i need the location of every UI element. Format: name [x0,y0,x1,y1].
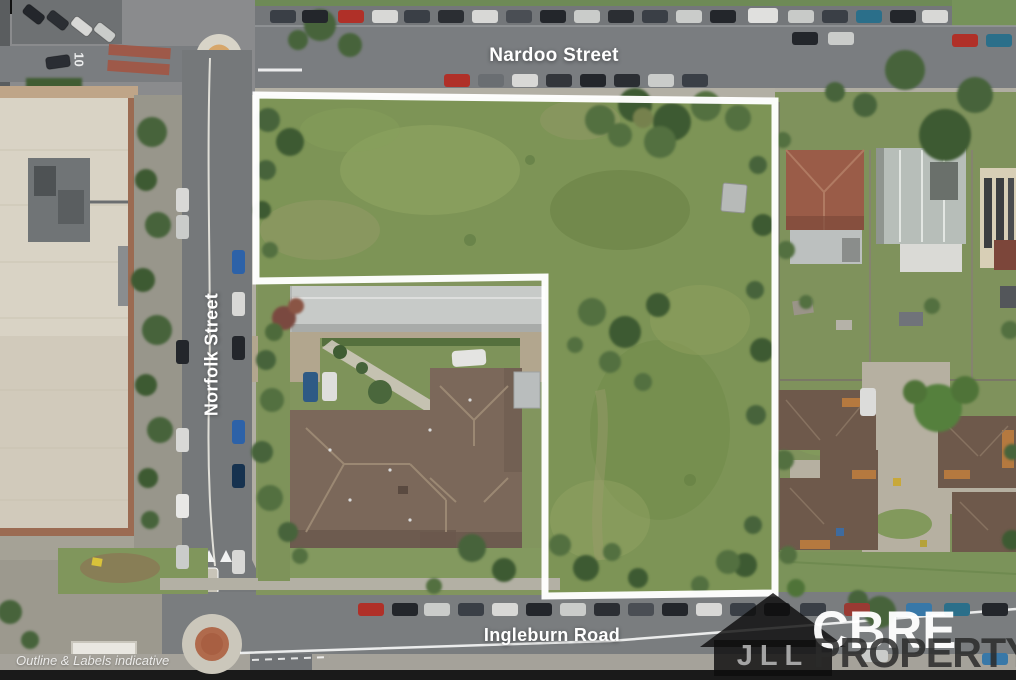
street-label-nardoo: Nardoo Street [454,45,654,67]
road-speed-marking: 10 [72,52,87,66]
aerial-scene-graphic [0,0,1016,680]
disclaimer-text: Outline & Labels indicative [16,653,169,668]
site-shed [721,183,747,213]
street-label-ingleburn: Ingleburn Road [452,625,652,646]
property-watermark-text: PROPERTY [813,629,1016,677]
commercial-building-west [0,86,140,600]
aerial-photo: Nardoo Street Norfolk Street Ingleburn R… [0,0,1016,680]
street-label-norfolk: Norfolk Street [202,280,223,430]
